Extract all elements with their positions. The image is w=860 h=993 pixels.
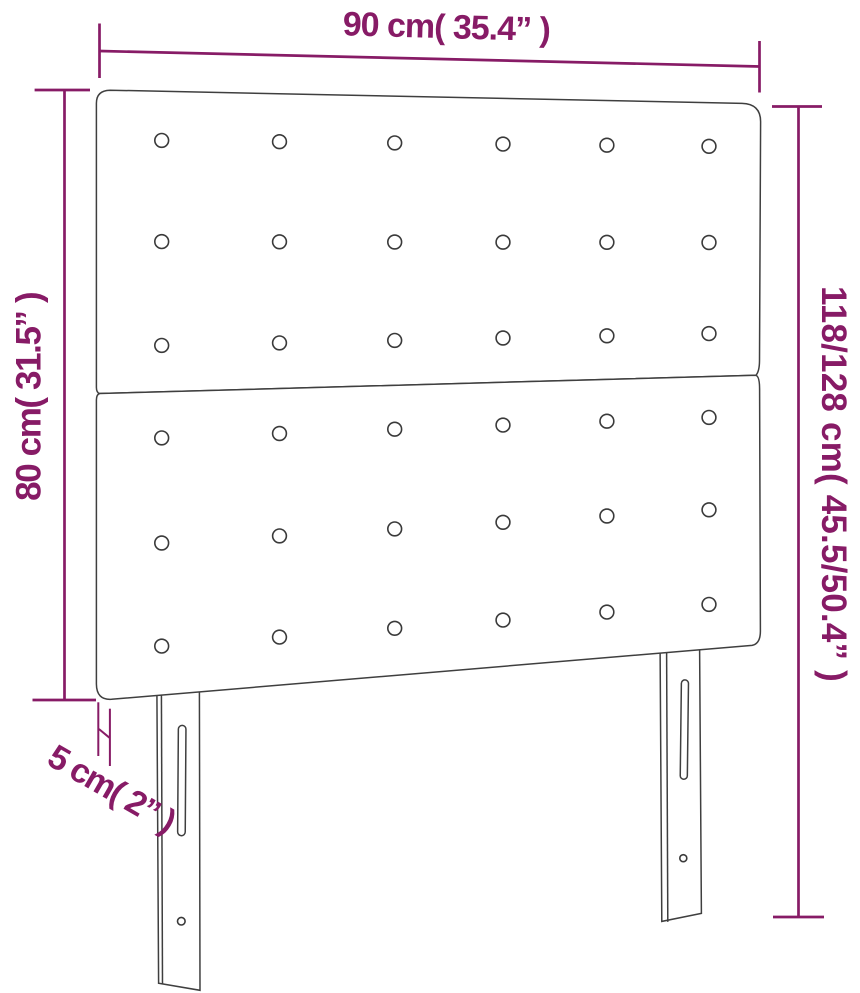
svg-text:90 cm( 35.4” ): 90 cm( 35.4” ) <box>342 5 550 49</box>
svg-text:80 cm( 31.5” ): 80 cm( 31.5” ) <box>9 293 48 501</box>
svg-text:118/128 cm( 45.5/50.4” ): 118/128 cm( 45.5/50.4” ) <box>814 286 853 682</box>
